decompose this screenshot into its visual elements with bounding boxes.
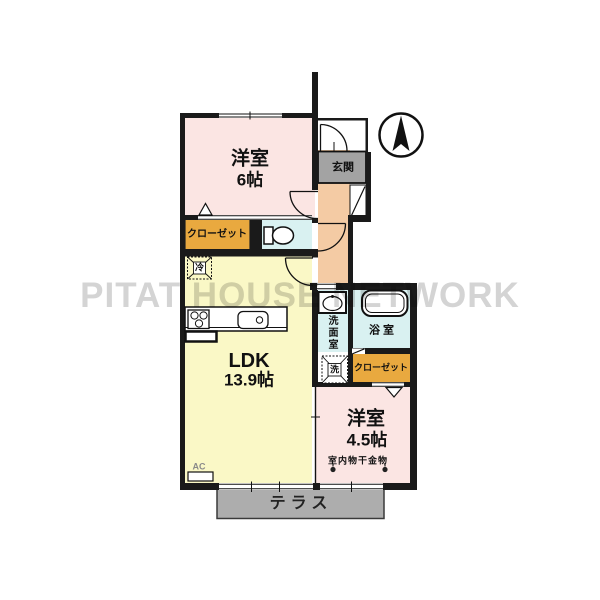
wall xyxy=(180,483,219,490)
wall xyxy=(180,215,198,220)
closet-north-label: クローゼット xyxy=(187,230,247,240)
wall xyxy=(180,249,318,257)
watermark: PITAT HOUSE NETWORK xyxy=(80,276,520,316)
ldk-name: LDK xyxy=(228,351,269,371)
wall xyxy=(312,119,318,190)
wall xyxy=(313,483,320,490)
washroom-label: 洗面室 xyxy=(326,315,336,351)
bedroom45-name: 洋室 xyxy=(347,410,385,429)
entrance-label: 玄関 xyxy=(332,163,354,174)
wall xyxy=(250,215,262,252)
floorplan-canvas: PITAT HOUSE NETWORK 洋室 6帖 LDK 13.9帖 洋室 4… xyxy=(0,0,600,600)
toilet-tank xyxy=(264,227,273,244)
bedroom6-name: 洋室 xyxy=(231,150,269,169)
ldk-size: 13.9帖 xyxy=(224,372,274,389)
laundry-hook-icon xyxy=(382,467,387,472)
wall xyxy=(180,113,219,118)
toilet-bowl xyxy=(273,227,294,244)
counter-return xyxy=(186,332,217,342)
refrigerator-label: 冷 xyxy=(195,264,204,273)
washer-label: 洗 xyxy=(330,365,339,374)
wall xyxy=(366,118,369,154)
closet-south-label: クローゼット xyxy=(354,364,408,373)
ac-unit-box xyxy=(188,472,213,481)
bedroom45-size: 4.5帖 xyxy=(347,432,388,449)
wall xyxy=(318,118,368,121)
laundry-hook-icon xyxy=(330,467,335,472)
bedroom6-size: 6帖 xyxy=(237,172,263,189)
ac-label: AC xyxy=(193,463,206,472)
toilet-icon xyxy=(264,227,294,244)
wall xyxy=(383,483,417,490)
ac-box xyxy=(188,472,213,481)
wall xyxy=(366,152,371,218)
wall xyxy=(404,382,417,387)
wall xyxy=(312,72,318,119)
bathroom-label: 浴室 xyxy=(369,326,397,337)
indoor-laundry-label: 室内物干金物 xyxy=(328,457,388,466)
terrace-label: テラス xyxy=(270,496,333,512)
north-arrow xyxy=(380,114,423,157)
